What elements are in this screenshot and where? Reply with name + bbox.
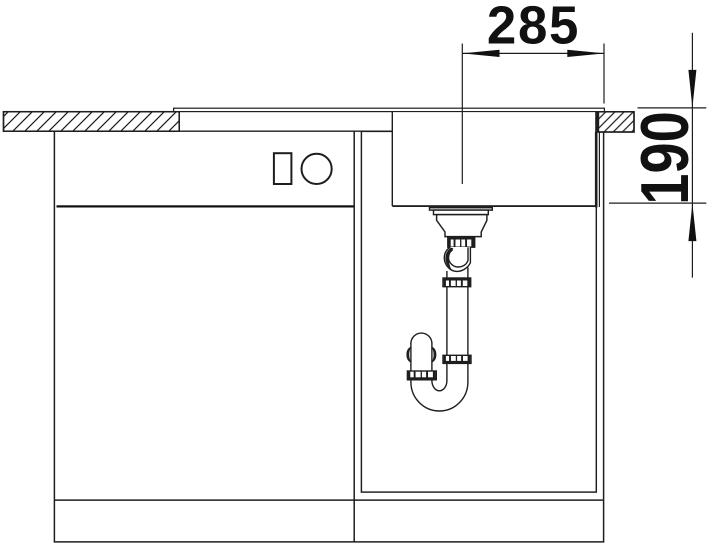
svg-text:285: 285 (487, 0, 580, 56)
svg-text:190: 190 (628, 111, 703, 205)
